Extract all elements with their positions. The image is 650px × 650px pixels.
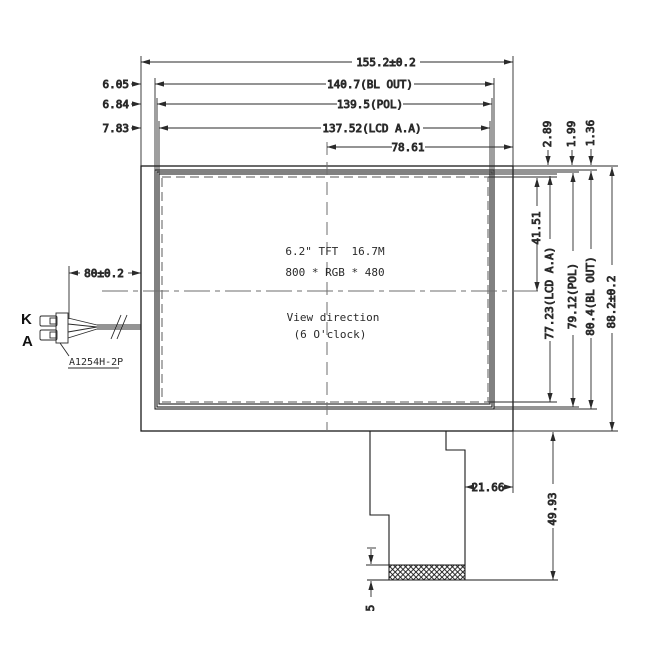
dim-text: 137.52(LCD A.A): [322, 122, 421, 135]
dim-bl-out-height: 80.4(BL OUT): [584, 171, 597, 409]
dim-lcd-aa-height: 77.23(LCD A.A): [543, 176, 556, 402]
fpc-contact-area: [389, 565, 465, 580]
dim-fpc-length: 49.93: [546, 432, 559, 580]
dim-text: 1.99: [565, 121, 578, 148]
dim-text: 155.2±0.2: [356, 56, 416, 69]
dim-text: 49.93: [546, 492, 559, 525]
engineering-drawing-svg: K A A1254H-2P 155.2±0.2 140.7(BL OUT) 13…: [0, 0, 650, 650]
dim-text: 1.36: [584, 120, 597, 147]
fpc-right-edge: [446, 431, 465, 565]
dim-text: 140.7(BL OUT): [327, 78, 413, 91]
dim-text: 79.12(POL): [566, 263, 579, 329]
connector-contact-top: [50, 318, 56, 324]
dim-bl-out-width: 140.7(BL OUT): [155, 78, 494, 91]
dim-left-offset-bl: 6.05: [103, 78, 142, 91]
fpc-left-edge: [370, 431, 389, 565]
dim-text: 139.5(POL): [337, 98, 403, 111]
backlight-outline: [155, 170, 494, 409]
dim-text: 78.61: [391, 141, 424, 154]
pin-label-a: A: [22, 333, 33, 350]
active-area-outline: [162, 177, 488, 402]
dim-fpc-right-offset: 21.66: [465, 481, 513, 494]
dim-text: 6.05: [103, 78, 130, 91]
dim-text: 41.51: [530, 211, 543, 244]
polarizer-outline: [157, 172, 492, 407]
dim-text: 2.89: [541, 121, 554, 148]
connector-contact-bottom: [50, 332, 56, 338]
dim-overall-height: 88.2±0.2: [605, 167, 618, 431]
centerlines: [102, 142, 543, 431]
display-spec-line1: 6.2" TFT 16.7M: [285, 245, 385, 258]
dim-center-to-right: 78.61: [327, 141, 513, 154]
dim-pol-height: 79.12(POL): [566, 173, 579, 407]
dim-wire-length: 80±0.2: [69, 267, 141, 280]
dim-top-offset-lcd: 2.89: [541, 121, 554, 165]
dim-text: 88.2±0.2: [605, 276, 618, 329]
view-direction-line2: (6 O'clock): [294, 328, 367, 341]
display-annotations: 6.2" TFT 16.7M 800 * RGB * 480 View dire…: [285, 245, 385, 341]
dim-aa-top-to-center: 41.51: [530, 178, 543, 291]
dim-left-offset-lcd: 7.83: [103, 122, 142, 135]
leader-line: [60, 343, 69, 356]
fpc-tail: [367, 431, 558, 580]
connector-part-number: A1254H-2P: [69, 357, 123, 368]
dim-text: 80.4(BL OUT): [584, 256, 597, 335]
dim-text: 7.83: [103, 122, 130, 135]
dim-text: 21.66: [471, 481, 504, 494]
display-spec-line2: 800 * RGB * 480: [285, 266, 384, 279]
dim-top-offset-bl: 1.36: [584, 120, 597, 165]
backlight-connector: K A A1254H-2P: [21, 311, 141, 368]
dim-text: 80±0.2: [84, 267, 124, 280]
connector-housing: [56, 313, 68, 343]
dim-pol-width: 139.5(POL): [157, 98, 492, 111]
dim-lcd-aa-width: 137.52(LCD A.A): [159, 122, 490, 135]
lcd-module-drawing: K A A1254H-2P 155.2±0.2 140.7(BL OUT) 13…: [0, 0, 650, 650]
dim-overall-width: 155.2±0.2: [141, 56, 513, 69]
dim-top-offset-pol: 1.99: [565, 121, 578, 165]
lcd-glass-outline: [159, 174, 490, 404]
dim-text: 6.84: [103, 98, 130, 111]
connector-pin-bottom: [40, 330, 57, 340]
dim-left-offset-pol: 6.84: [103, 98, 142, 111]
pin-label-k: K: [21, 311, 32, 328]
dim-text: 5: [364, 605, 377, 612]
view-direction-line1: View direction: [287, 311, 380, 324]
connector-pin-top: [40, 316, 57, 326]
dim-text: 77.23(LCD A.A): [543, 247, 556, 340]
